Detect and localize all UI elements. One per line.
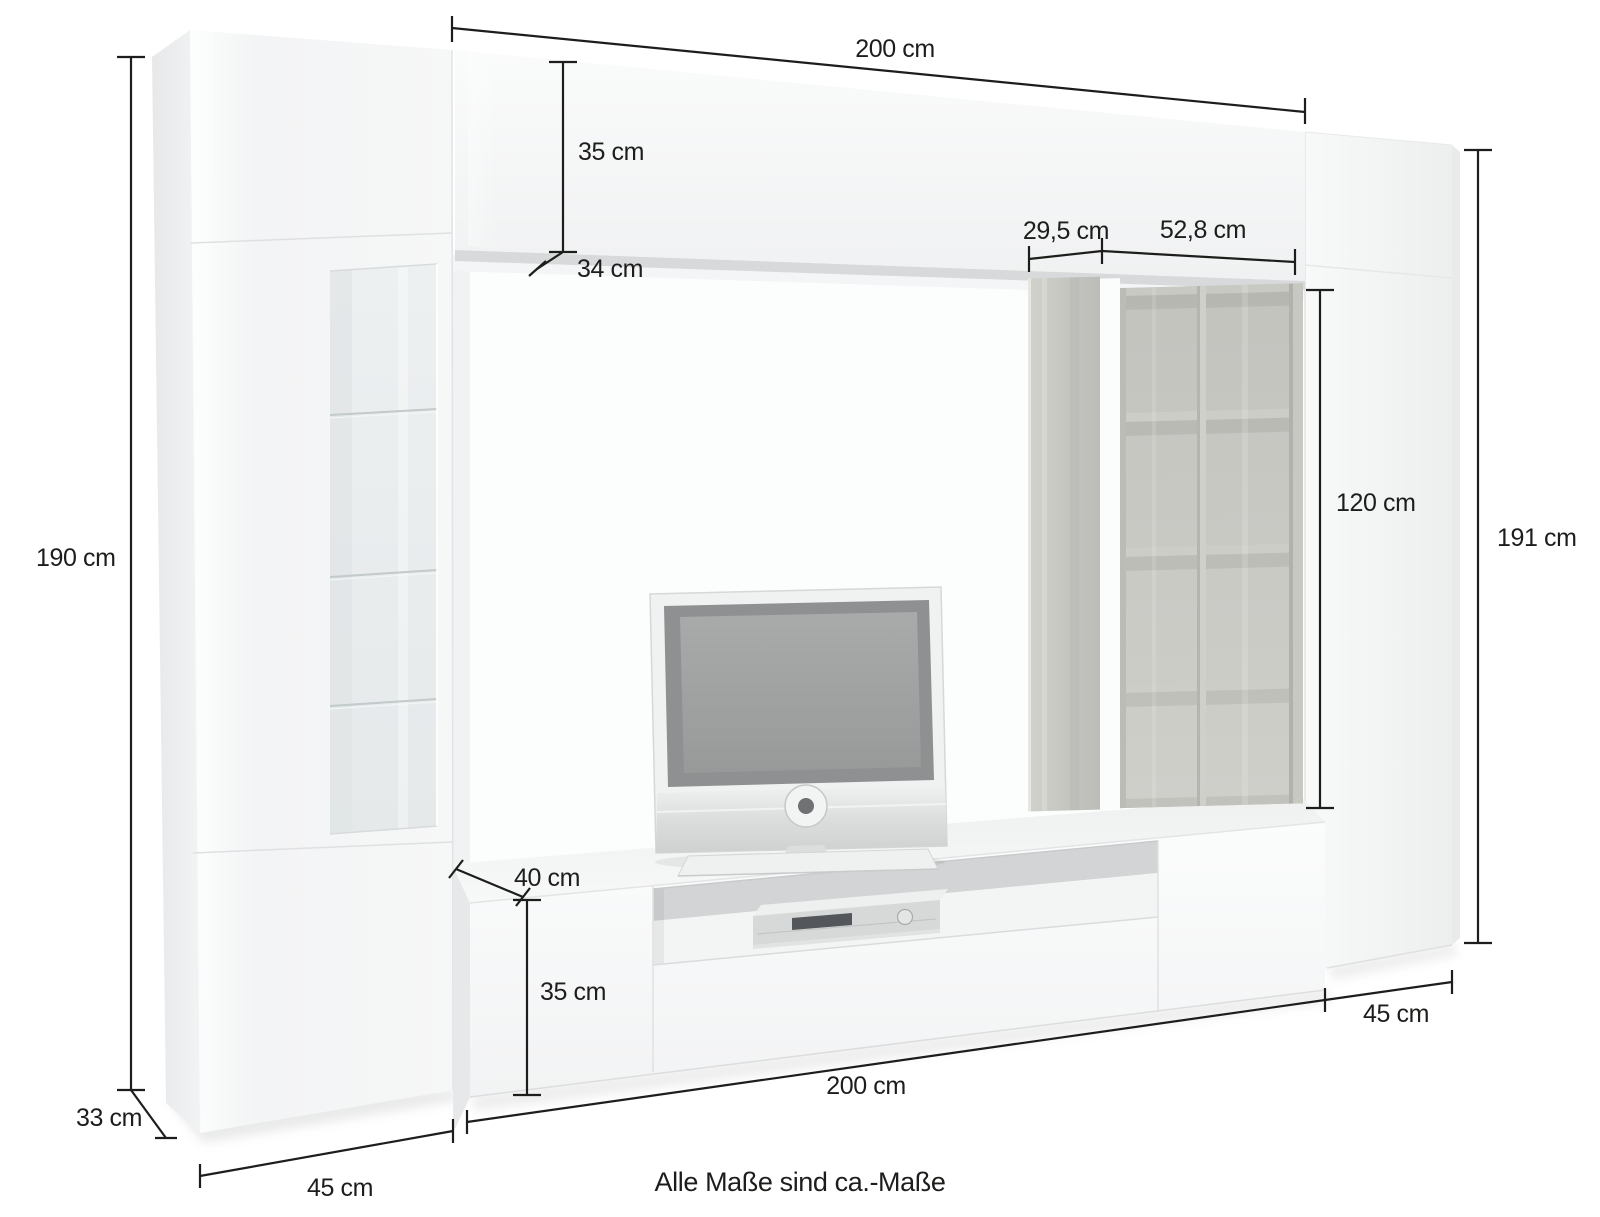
dim-40-label: 40 cm	[514, 864, 580, 892]
top-bridge-cabinet	[455, 50, 1305, 290]
dim-35low-label: 35 cm	[540, 978, 606, 1006]
dim-200b-label: 200 cm	[826, 1072, 906, 1100]
dim-45l-line	[200, 1131, 453, 1176]
dim-45r-line	[1325, 982, 1452, 1000]
shelf-grid-divider-shade	[1197, 286, 1200, 806]
shelf-texture-streak-1	[1152, 287, 1156, 807]
dim-top-width-label: 200 cm	[855, 35, 935, 63]
cubby-shadow-r3c1	[1126, 555, 1197, 571]
dim-left-cabinet-depth: 33 cm	[76, 1090, 177, 1138]
left-cabinet-right-edge	[452, 50, 453, 1090]
dim-right-cabinet-height: 191 cm	[1464, 150, 1577, 943]
shelf-grid-left-wall	[1120, 288, 1126, 808]
shelf-gap-wall	[1100, 278, 1120, 809]
lowboard-open-shelf-left-shadow	[653, 888, 664, 965]
cubby-shadow-r1c1	[1126, 294, 1197, 310]
dim-45r-label: 45 cm	[1363, 1000, 1429, 1028]
dim-120-label: 120 cm	[1336, 489, 1416, 517]
dim-33-label: 33 cm	[76, 1104, 142, 1132]
wall-unit-dimension-diagram: 200 cm 35 cm 34 cm 29,5 cm 52,8 cm	[0, 0, 1600, 1217]
dim-45l-label: 45 cm	[307, 1174, 373, 1202]
vitrine-inner-shadow	[330, 269, 352, 834]
bridge-gloss	[468, 51, 498, 249]
niche-left-shadow	[453, 255, 470, 864]
dim-190-label: 190 cm	[36, 544, 116, 572]
right-cabinet	[1305, 132, 1460, 970]
tv	[650, 587, 947, 876]
dim-528-label: 52,8 cm	[1160, 216, 1246, 244]
shelf-unit	[1028, 271, 1303, 811]
tv-knob-center	[798, 798, 814, 814]
left-cabinet	[152, 30, 453, 1133]
shelf-panel-streak-1	[1042, 278, 1047, 811]
glass-vitrine	[330, 264, 437, 834]
dvd-knob	[898, 910, 913, 925]
dim-295-label: 29,5 cm	[1023, 217, 1109, 245]
tv-screen	[680, 612, 921, 773]
diagram-canvas: 200 cm 35 cm 34 cm 29,5 cm 52,8 cm	[0, 0, 1600, 1217]
dim-right-cabinet-width: 45 cm	[1325, 970, 1452, 1028]
vitrine-reflection	[398, 267, 408, 831]
right-cabinet-front	[1305, 132, 1452, 970]
dim-35top-label: 35 cm	[578, 138, 644, 166]
lowboard-left-side	[453, 866, 470, 1133]
cubby-shadow-r2c1	[1126, 420, 1197, 436]
shelf-panel-edge-highlight	[1028, 278, 1031, 811]
right-cabinet-side	[1452, 145, 1460, 945]
shelf-panel	[1028, 277, 1100, 812]
shelf-texture-streak-2	[1242, 285, 1248, 805]
dim-left-cabinet-height: 190 cm	[36, 57, 145, 1090]
shelf-grid-right-wall-shade	[1289, 284, 1293, 804]
dim-34-label: 34 cm	[577, 255, 643, 283]
shelf-panel-streak-2	[1070, 277, 1079, 810]
dim-191-label: 191 cm	[1497, 524, 1577, 552]
footnote: Alle Maße sind ca.-Maße	[655, 1167, 946, 1197]
cubby-shadow-r4c1	[1126, 691, 1197, 707]
